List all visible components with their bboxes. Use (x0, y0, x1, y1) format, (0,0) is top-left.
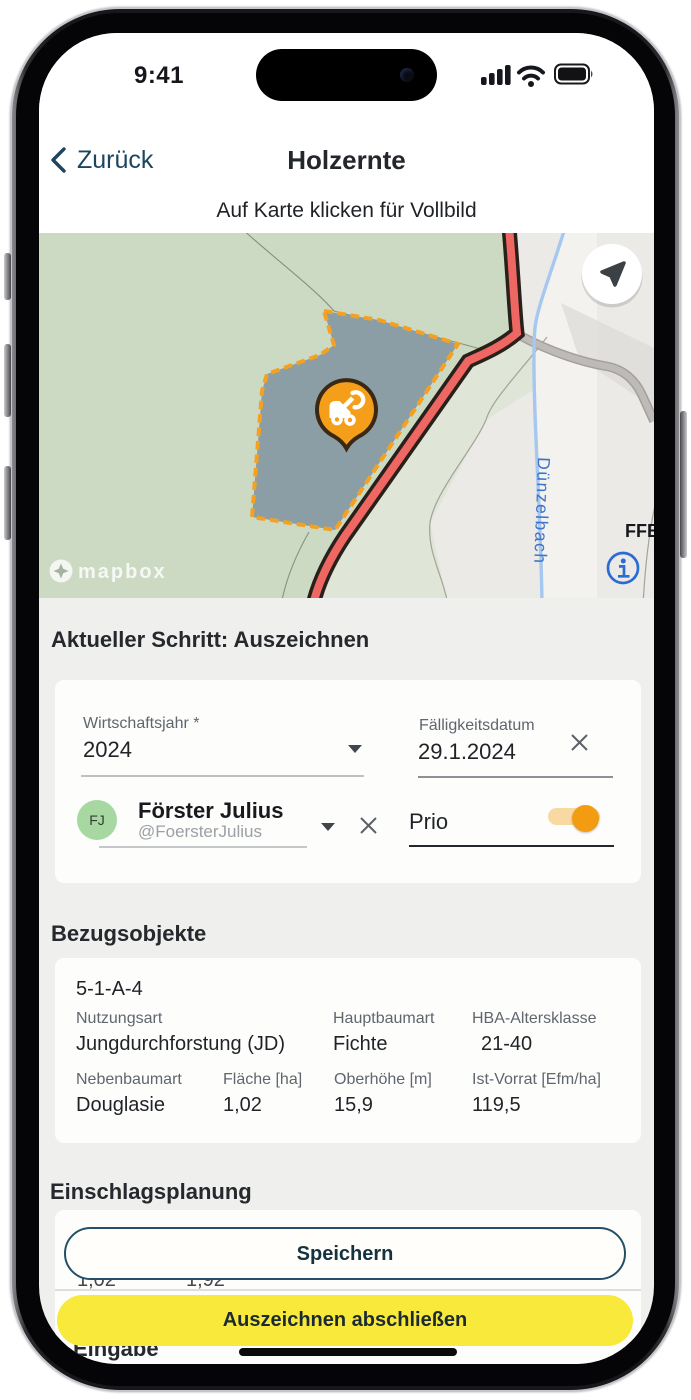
svg-text:Dünzelbach: Dünzelbach (530, 457, 554, 565)
svg-text:mapbox: mapbox (78, 561, 167, 583)
svg-text:FFB 5: FFB 5 (625, 521, 654, 541)
